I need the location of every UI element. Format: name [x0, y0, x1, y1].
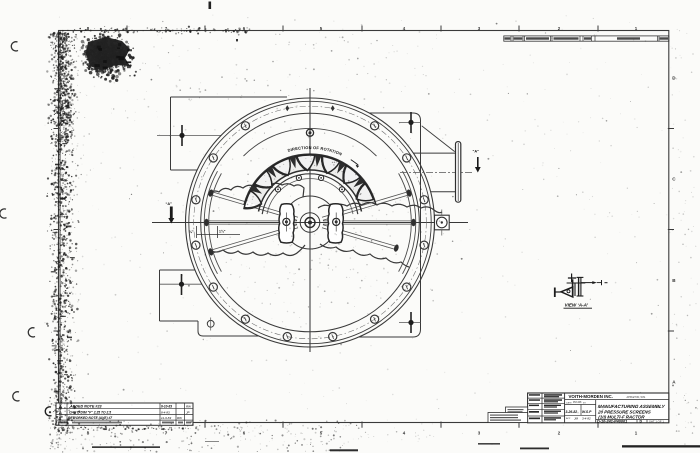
svg-text:REWORKED NOTE (A)(E) #7: REWORKED NOTE (A)(E) #7 [68, 416, 112, 420]
svg-text:“A”: “A” [473, 150, 480, 154]
svg-text:3-26-82: 3-26-82 [566, 410, 578, 414]
svg-text:PM-408: PM-408 [573, 401, 582, 404]
svg-text:APP: APP [566, 417, 571, 420]
svg-text:D-10-241-P40001: D-10-241-P40001 [597, 419, 627, 423]
svg-text:6-10-83: 6-10-83 [161, 405, 172, 409]
svg-text:D: D [640, 420, 643, 424]
svg-text:1¼”: 1¼” [219, 230, 226, 234]
svg-text:3-4-82: 3-4-82 [582, 416, 591, 420]
svg-text:“A”: “A” [166, 202, 173, 206]
svg-text:JP: JP [186, 410, 190, 414]
svg-text:W.S.P: W.S.P [582, 410, 592, 414]
svg-text:11-9-83: 11-9-83 [161, 416, 171, 420]
svg-text:MANUFACTURING ASSEMBLY: MANUFACTURING ASSEMBLY [598, 404, 666, 409]
svg-text:VIEW ‘A-A’: VIEW ‘A-A’ [565, 303, 589, 308]
svg-text:DATE: DATE [566, 402, 572, 405]
svg-text:8-4-83: 8-4-83 [161, 410, 170, 414]
svg-text:¼”: ¼” [189, 230, 194, 234]
svg-text:JM: JM [574, 416, 579, 420]
svg-text:SHT 1 OF 1: SHT 1 OF 1 [649, 419, 664, 423]
svg-text:APPLETON, WIS.: APPLETON, WIS. [627, 396, 647, 399]
svg-text:VOITH-MORDEN INC.: VOITH-MORDEN INC. [569, 394, 613, 399]
